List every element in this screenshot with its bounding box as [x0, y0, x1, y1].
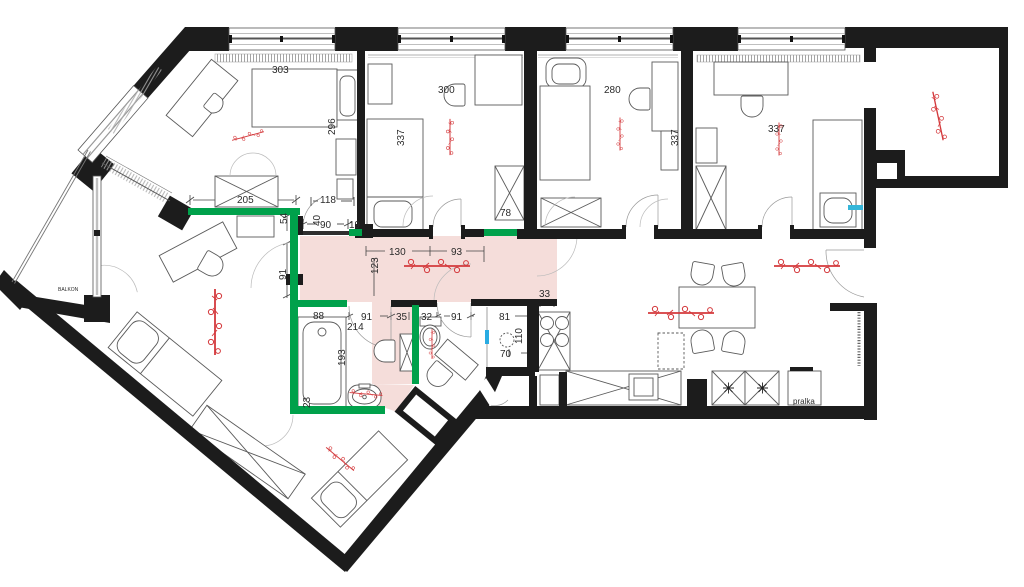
svg-text:123: 123	[370, 257, 381, 274]
svg-text:91: 91	[451, 312, 463, 323]
svg-text:205: 205	[237, 195, 254, 206]
svg-text:BALKON: BALKON	[58, 287, 79, 293]
svg-text:40: 40	[312, 214, 323, 226]
svg-text:193: 193	[337, 349, 348, 366]
svg-text:303: 303	[272, 65, 289, 76]
svg-text:70: 70	[500, 349, 512, 360]
svg-text:280: 280	[604, 85, 621, 96]
svg-text:33: 33	[539, 289, 551, 300]
svg-text:pralka: pralka	[793, 397, 815, 406]
svg-text:35: 35	[396, 312, 408, 323]
svg-text:337: 337	[396, 129, 407, 146]
svg-text:337: 337	[768, 124, 785, 135]
svg-text:23: 23	[302, 396, 313, 408]
svg-text:300: 300	[438, 85, 455, 96]
svg-text:78: 78	[500, 208, 512, 219]
svg-text:110: 110	[514, 328, 525, 344]
svg-text:93: 93	[451, 247, 463, 258]
svg-text:296: 296	[327, 118, 338, 135]
svg-text:19: 19	[349, 220, 361, 231]
svg-text:214: 214	[347, 322, 364, 333]
svg-text:130: 130	[389, 247, 406, 258]
svg-text:54: 54	[279, 212, 290, 224]
svg-text:88: 88	[313, 311, 325, 322]
svg-text:337: 337	[670, 129, 681, 146]
svg-text:91: 91	[278, 268, 289, 280]
svg-text:32: 32	[421, 312, 433, 323]
svg-text:81: 81	[499, 312, 511, 323]
svg-text:118: 118	[320, 195, 336, 206]
